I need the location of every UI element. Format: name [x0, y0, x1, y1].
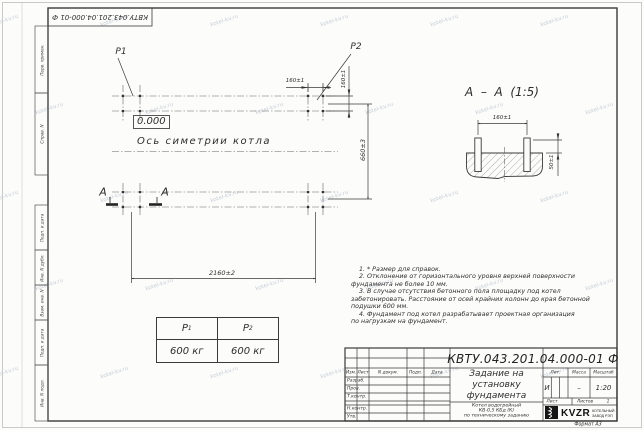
dim-bolt-spacing-x: 160±1	[286, 78, 305, 84]
plan-view-lines	[106, 54, 351, 216]
note-line: 3. В случае отсутствия бетонного пола пл…	[351, 288, 617, 295]
kvzr-caption-line2: ЗАВОД РЭП	[592, 414, 613, 418]
note-line: 2. Отклонение от горизонтального уровня …	[351, 273, 617, 280]
tb-header-ndoc: N докум.	[378, 370, 398, 375]
tb-list-label: Лист	[547, 399, 558, 404]
note-line: по нагрузкам на фундамент.	[351, 318, 617, 325]
tb-subtitle-line3: по техническому заданию	[464, 414, 529, 419]
load-point-2-label: Р2	[350, 42, 361, 52]
tb-listov-label: Листов	[577, 399, 593, 404]
level-mark: 0.000	[133, 115, 170, 129]
tb-lit-label: Лит.	[551, 370, 561, 375]
inverted-doc-number-stamp: КВТУ.043.201.04.000-01 Ф	[52, 13, 148, 21]
load-table-header-1: Р1	[157, 318, 218, 340]
dim-foundation-length: 2160±2	[209, 269, 235, 277]
tb-header-list: Лист	[358, 370, 369, 375]
section-dim-bolt-spacing: 160±1	[493, 115, 512, 121]
tb-row-utv: Утв.	[347, 415, 356, 420]
kvzr-logo-text: KVZR	[561, 408, 590, 419]
tb-header-izm: Изм.	[346, 370, 356, 375]
note-line: 1. * Размер для справок.	[351, 266, 617, 273]
tb-lit-value: И	[544, 384, 549, 392]
scanned-drawing-page: { "watermark": {"text": "kotel-kv.ru"}, …	[0, 0, 644, 430]
section-letter-right: А	[161, 186, 169, 199]
margin-label-inv-dubl: Инв. N дубл.	[39, 254, 44, 281]
tb-listov-value: 1	[607, 399, 610, 404]
section-view-lines	[467, 120, 563, 182]
tb-row-razrab: Разраб.	[347, 379, 365, 384]
load-table-header-2: Р2	[218, 318, 279, 340]
tb-header-data: Дата	[431, 370, 442, 375]
note-line: 4. Фундамент под котел разрабатывает про…	[351, 311, 617, 318]
margin-label-sprav-n: Справ. N	[39, 124, 44, 143]
load-table-value-2: 600 кг	[218, 340, 279, 362]
note-line: подушки 600 мм.	[351, 303, 617, 310]
margin-label-podp-data-1: Подп. и дата	[39, 213, 44, 242]
tb-row-nkontr: Н.контр.	[347, 407, 367, 412]
dim-bolt-spacing-y: 160±1	[341, 70, 347, 89]
technical-notes: 1. * Размер для справок. 2. Отклонение о…	[351, 266, 617, 325]
plan-dimensions	[132, 66, 373, 283]
margin-label-vzam-inv: Взам. инв. N	[39, 289, 44, 316]
tb-masshtab-value: 1:20	[596, 384, 612, 392]
format-label: Формат А3	[574, 422, 601, 427]
tb-massa-value: –	[577, 384, 581, 392]
title-block-doc-number: КВТУ.043.201.04.000-01 Ф	[447, 352, 619, 366]
section-dim-protrusion: 50±1	[549, 154, 555, 169]
tb-row-tkontr: Т.контр.	[347, 395, 367, 400]
note-line: забетонировать. Расстояние от осей крайн…	[351, 296, 617, 303]
section-cut-marks	[106, 197, 162, 205]
tb-title-line1: Задание на	[469, 369, 524, 379]
load-table-value-1: 600 кг	[157, 340, 218, 362]
kvzr-caption-line1: КОТЕЛЬНЫЙ	[592, 409, 615, 413]
tb-title-line2: установку	[472, 380, 521, 390]
tb-row-prov: Пров.	[347, 387, 360, 392]
load-table: Р1 Р2 600 кг 600 кг	[156, 317, 279, 363]
load-point-1-label: Р1	[115, 47, 126, 57]
tb-masshtab-label: Масштаб	[593, 370, 613, 375]
section-letter-left: А	[99, 186, 107, 199]
margin-label-perv-primen: Перв. примен.	[39, 44, 44, 75]
tb-subtitle-line1: Котел водогрейный	[472, 403, 521, 408]
margin-label-podp-data-2: Подп. и дата	[39, 328, 44, 357]
drawing-linework	[0, 0, 644, 430]
dim-foundation-width: 660±3	[359, 139, 367, 161]
section-view-title: А – А (1:5)	[465, 85, 539, 99]
kvzr-logo-icon	[545, 406, 558, 419]
tb-header-podp: Подп.	[409, 370, 422, 375]
margin-label-inv-podl: Инв. N подл.	[39, 379, 44, 407]
tb-title-line3: фундамента	[467, 391, 527, 401]
boiler-symmetry-axis-label: Ось симетрии котла	[137, 136, 271, 147]
tb-massa-label: Масса	[572, 370, 586, 375]
